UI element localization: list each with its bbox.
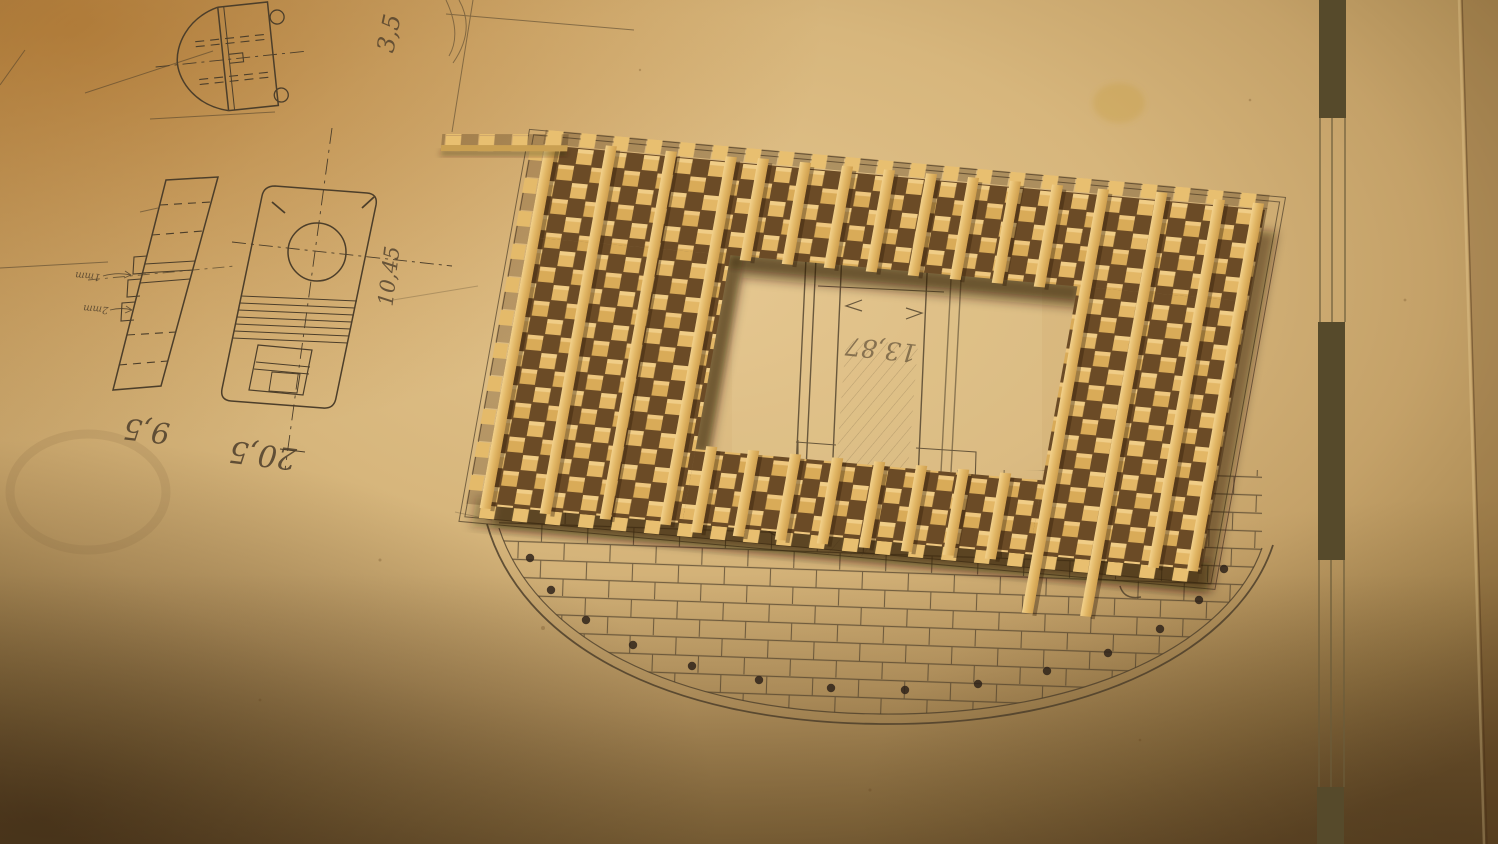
photo-of-ship-model-grating-on-plan: 3,5 10,45 9,5 20,5 1mm 2mm 13,87 5mm: [0, 0, 1498, 844]
label-2mm: 2mm: [83, 302, 110, 315]
label-1mm: 1mm: [75, 269, 101, 282]
scale-bar-dark-3: [1317, 787, 1344, 844]
scale-bar-dark-1: [1319, 0, 1346, 118]
paper-stain: [1093, 83, 1145, 123]
label-9-5: 9,5: [122, 411, 172, 450]
scale-bar-dark-2: [1318, 322, 1345, 560]
loose-comb-strip: [440, 134, 569, 156]
